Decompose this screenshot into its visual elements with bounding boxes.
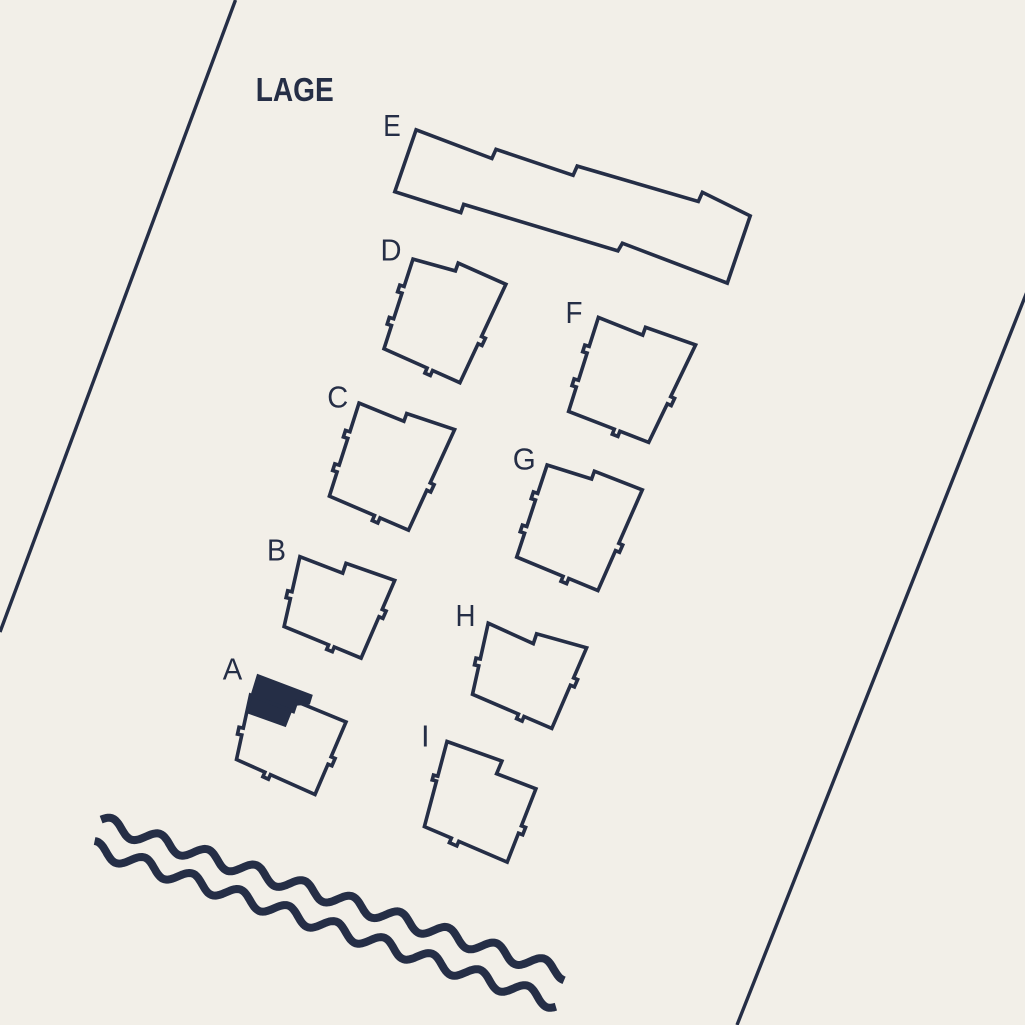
svg-text:H: H (456, 598, 476, 633)
svg-text:C: C (327, 380, 348, 415)
svg-text:LAGE: LAGE (256, 71, 334, 108)
svg-text:F: F (566, 295, 583, 330)
svg-text:A: A (223, 652, 243, 687)
svg-text:D: D (381, 233, 402, 268)
svg-text:E: E (383, 108, 401, 143)
svg-text:G: G (513, 442, 536, 477)
svg-text:I: I (421, 719, 430, 754)
svg-text:B: B (267, 533, 286, 568)
